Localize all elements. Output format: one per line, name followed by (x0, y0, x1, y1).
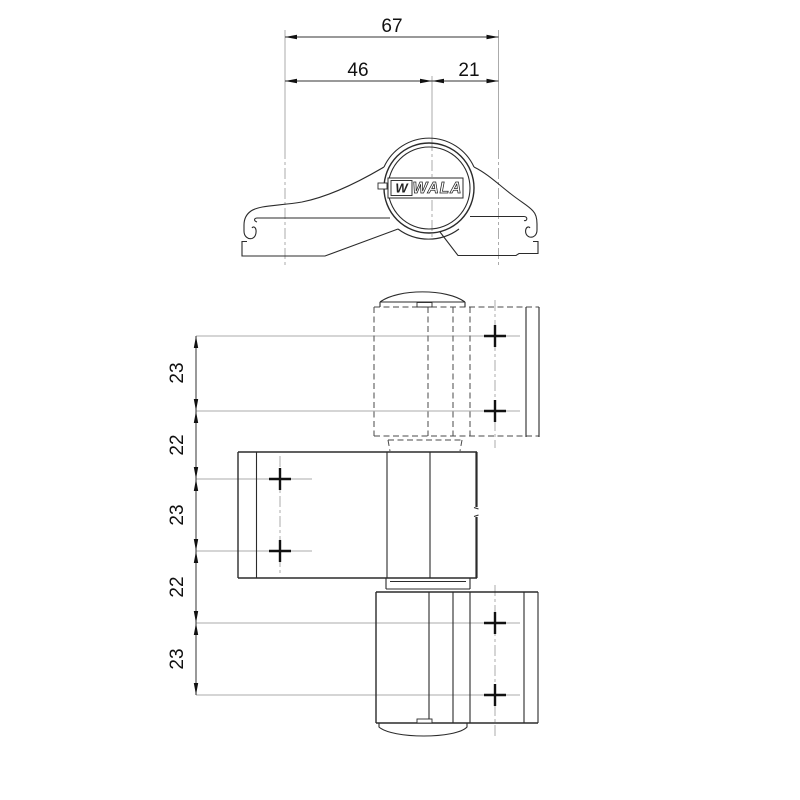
logo-text: WALA (413, 180, 463, 197)
dim-label-23-2: 23 (167, 504, 188, 525)
middle-plate (238, 452, 479, 589)
construction-lines (196, 30, 520, 737)
dim-label-22-2: 22 (167, 576, 188, 597)
drawing-page: W WALA (0, 0, 800, 800)
dimension-overall-67: 67 (285, 16, 499, 39)
bottom-knuckle (376, 592, 538, 736)
logo-tick (378, 183, 387, 189)
dim-label-22-1: 22 (167, 434, 188, 455)
wala-logo: W WALA (378, 178, 463, 198)
dim-label-21: 21 (458, 60, 479, 81)
dim-label-23-1: 23 (167, 362, 188, 383)
top-knuckle-hidden (374, 307, 539, 451)
bottom-knuckle-cap (379, 723, 467, 736)
top-knuckle-flange (526, 307, 539, 437)
dim-label-46: 46 (347, 60, 368, 81)
top-knuckle-cap (380, 292, 465, 307)
dimension-chain-left: 23 22 23 22 23 (167, 336, 198, 695)
front-view (238, 292, 539, 736)
top-view: W WALA (242, 138, 538, 256)
dimension-46-21: 46 21 (285, 60, 499, 83)
dim-label-67: 67 (381, 16, 402, 37)
dim-label-23-3: 23 (167, 648, 188, 669)
logo-mark: W (395, 181, 409, 196)
left-arm-profile (242, 167, 398, 256)
technical-drawing: W WALA (0, 0, 800, 800)
